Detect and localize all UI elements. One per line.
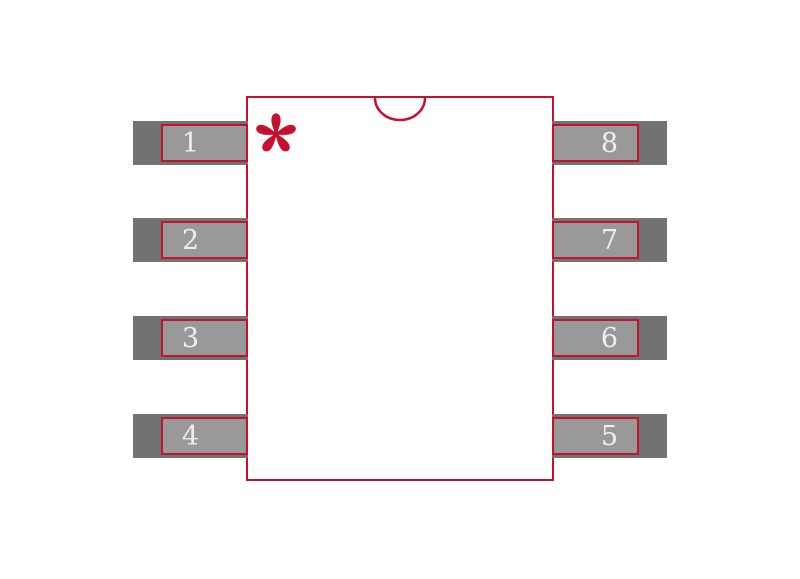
pin-8-number: 8 <box>552 121 667 165</box>
pin-4: 4 <box>133 414 248 458</box>
pin-7: 7 <box>552 218 667 262</box>
pin-5: 5 <box>552 414 667 458</box>
footprint-canvas: 1 2 3 4 8 7 6 5 <box>0 0 800 579</box>
pin-2-number: 2 <box>133 218 248 262</box>
pin-4-number: 4 <box>133 414 248 458</box>
pin-6: 6 <box>552 316 667 360</box>
pin-8: 8 <box>552 121 667 165</box>
pin-3-number: 3 <box>133 316 248 360</box>
pin1-marker-asterisk-icon <box>252 108 300 156</box>
pin-6-number: 6 <box>552 316 667 360</box>
pin-1-number: 1 <box>133 121 248 165</box>
orientation-notch-icon <box>373 97 427 125</box>
pin-5-number: 5 <box>552 414 667 458</box>
pin-1: 1 <box>133 121 248 165</box>
pin-3: 3 <box>133 316 248 360</box>
pin-7-number: 7 <box>552 218 667 262</box>
pin-2: 2 <box>133 218 248 262</box>
